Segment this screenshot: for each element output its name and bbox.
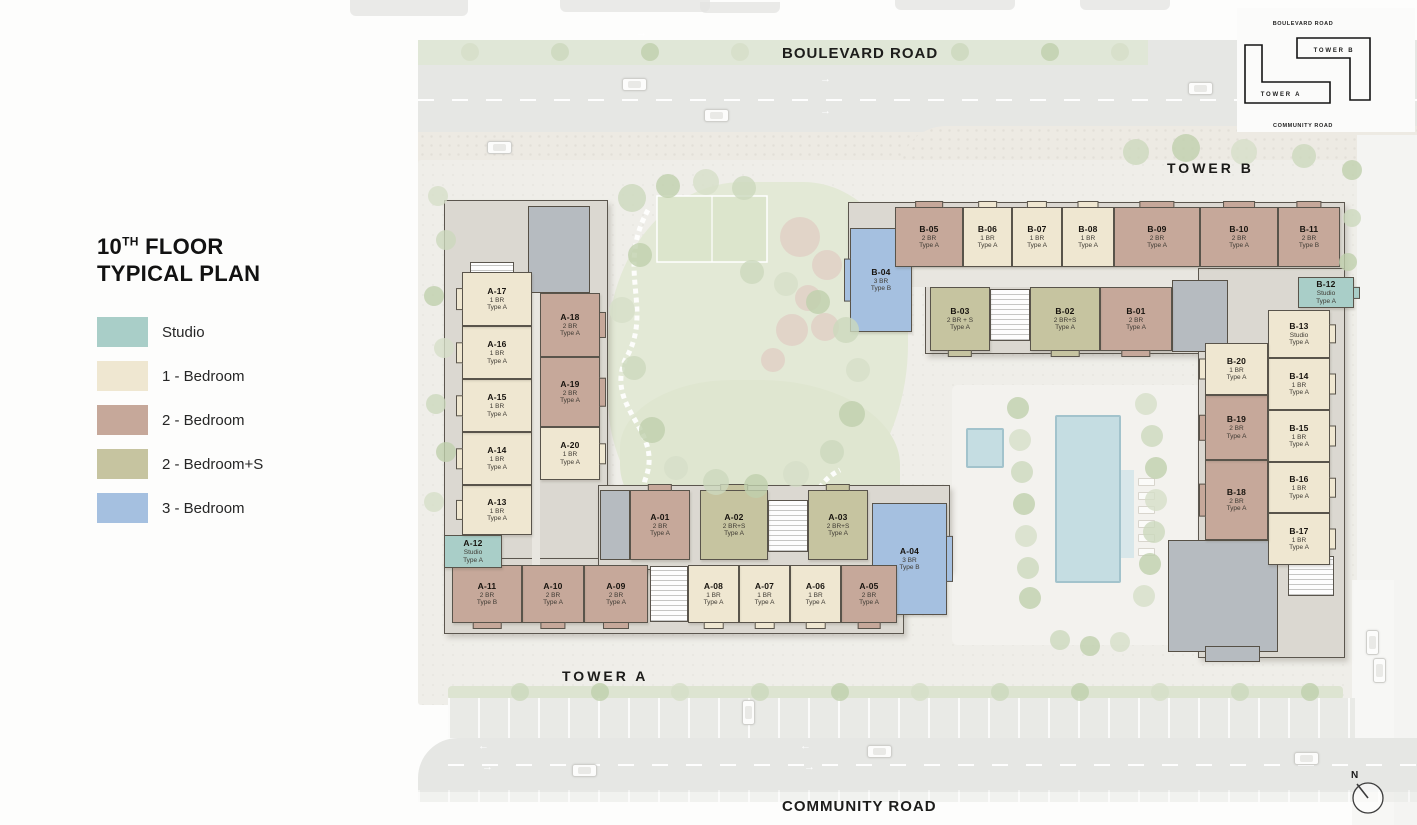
unit-type-line: Type A <box>606 599 626 607</box>
unit-A-20: A-201 BRType A <box>540 427 600 480</box>
legend-label: 2 - Bedroom <box>162 412 245 429</box>
unit-type-line: Type A <box>1147 242 1167 250</box>
legend-swatch-br2 <box>97 405 148 435</box>
unit-type-line: Type A <box>806 599 826 607</box>
tree <box>911 683 929 701</box>
tree <box>1172 134 1200 162</box>
tree <box>1041 43 1059 61</box>
car <box>1366 630 1379 655</box>
offsite-building <box>350 0 468 16</box>
unit-type-line: Type A <box>487 515 507 523</box>
tree <box>424 492 444 512</box>
unit-A-13: A-131 BRType A <box>462 485 532 535</box>
unit-B-01: B-012 BRType A <box>1100 287 1172 351</box>
unit-id: A-16 <box>487 339 506 350</box>
unit-type-line: Type A <box>1227 505 1247 513</box>
tree <box>1110 632 1130 652</box>
tree <box>656 174 680 198</box>
unit-type-line: Type B <box>1299 242 1319 250</box>
tree <box>1292 144 1316 168</box>
unit-type-line: Type A <box>487 411 507 419</box>
unit-A-11: A-112 BRType B <box>452 565 522 623</box>
tree <box>744 474 768 498</box>
tree <box>1111 43 1129 61</box>
corridor-tower-b <box>912 268 1198 287</box>
unit-type-line: Type A <box>1055 324 1075 332</box>
legend-swatch-br2s <box>97 449 148 479</box>
unit-B-18: B-182 BRType A <box>1205 460 1268 540</box>
unit-type-line: 2 BR <box>609 592 623 600</box>
tree <box>511 683 529 701</box>
tree <box>1123 139 1149 165</box>
unit-id: A-15 <box>487 392 506 403</box>
tree <box>1011 461 1033 483</box>
stair-tower-a-south <box>650 566 688 622</box>
traffic-arrow: ← <box>800 741 811 752</box>
unit-A-14: A-141 BRType A <box>462 432 532 485</box>
traffic-arrow: → <box>820 74 831 85</box>
keyplan: BOULEVARD ROAD TOWER B TOWER A COMMUNITY… <box>1237 8 1415 132</box>
unit-type-line: 2 BR <box>480 592 494 600</box>
tree <box>991 683 1009 701</box>
offsite-building <box>895 0 1015 10</box>
unit-A-02: A-022 BR+SType A <box>700 490 768 560</box>
tree <box>740 260 764 284</box>
tree <box>1145 489 1167 511</box>
unit-type-line: Studio <box>464 549 482 557</box>
tree <box>664 456 688 480</box>
pool-lounger <box>1138 478 1155 486</box>
unit-type-line: 1 BR <box>1229 367 1243 375</box>
unit-id: A-11 <box>478 581 497 592</box>
unit-id: B-04 <box>871 267 890 278</box>
car <box>704 109 729 122</box>
unit-A-06: A-061 BRType A <box>790 565 841 623</box>
tree <box>641 43 659 61</box>
unit-type-line: 1 BR <box>490 456 504 464</box>
unit-type-line: Type A <box>650 530 670 538</box>
unit-A-05: A-052 BRType A <box>841 565 897 623</box>
unit-id: B-14 <box>1289 371 1308 382</box>
unit-type-line: Type A <box>560 397 580 405</box>
traffic-arrow: → <box>636 28 647 39</box>
unit-type-line: 2 BR <box>1150 235 1164 243</box>
car <box>1294 752 1319 765</box>
car <box>1188 82 1213 95</box>
unit-type-line: 1 BR <box>1030 235 1044 243</box>
unit-A-19: A-192 BRType A <box>540 357 600 427</box>
unit-id: A-03 <box>828 512 847 523</box>
unit-A-08: A-081 BRType A <box>688 565 739 623</box>
unit-type-line: Type A <box>859 599 879 607</box>
tree <box>1339 253 1357 271</box>
unit-type-line: Type A <box>1227 433 1247 441</box>
offsite-building <box>700 2 780 13</box>
unit-B-11: B-112 BRType B <box>1278 207 1340 267</box>
unit-id: B-20 <box>1227 356 1246 367</box>
tree <box>1015 525 1037 547</box>
unit-type-line: 2 BR <box>653 523 667 531</box>
legend-swatch-studio <box>97 317 148 347</box>
unit-id: A-06 <box>806 581 825 592</box>
unit-id: A-07 <box>755 581 774 592</box>
floor-plan-page: BOULEVARD ROAD COMMUNITY ROAD <box>0 0 1417 825</box>
unit-type-line: 3 BR <box>874 278 888 286</box>
unit-type-line: 1 BR <box>1292 434 1306 442</box>
tree <box>628 243 652 267</box>
unit-type-line: 2 BR <box>563 323 577 331</box>
car <box>572 764 597 777</box>
unit-B-16: B-161 BRType A <box>1268 462 1330 513</box>
unit-type-line: 1 BR <box>490 297 504 305</box>
pool-steps <box>1121 470 1134 558</box>
tree <box>1050 630 1070 650</box>
unit-type-line: Type A <box>1289 441 1309 449</box>
page-title: 10TH FLOOR TYPICAL PLAN <box>97 234 260 288</box>
unit-type-line: Type A <box>755 599 775 607</box>
kids-pool <box>966 428 1004 468</box>
unit-type-line: Type A <box>543 599 563 607</box>
tree <box>1080 636 1100 656</box>
unit-id: B-12 <box>1316 279 1335 290</box>
unit-type-line: Type A <box>1126 324 1146 332</box>
unit-type-line: 2 BR <box>563 390 577 398</box>
unit-id: A-09 <box>606 581 625 592</box>
unit-type-line: 2 BR+S <box>1054 317 1077 325</box>
tree <box>839 401 865 427</box>
tree <box>1007 397 1029 419</box>
tree <box>1009 429 1031 451</box>
unit-type-line: Type A <box>1289 493 1309 501</box>
unit-B-15: B-151 BRType A <box>1268 410 1330 462</box>
unit-id: B-02 <box>1055 306 1074 317</box>
unit-A-07: A-071 BRType A <box>739 565 790 623</box>
unit-type-line: Type B <box>871 285 891 293</box>
tree <box>693 169 719 195</box>
tree <box>846 358 870 382</box>
tree <box>551 43 569 61</box>
unit-B-06: B-061 BRType A <box>963 207 1012 267</box>
tree <box>1141 425 1163 447</box>
core-tower-b-east <box>1172 280 1228 352</box>
unit-B-20: B-201 BRType A <box>1205 343 1268 395</box>
unit-id: B-16 <box>1289 474 1308 485</box>
tree <box>1151 683 1169 701</box>
unit-type-line: Type A <box>704 599 724 607</box>
tree <box>618 184 646 212</box>
tree <box>783 461 809 487</box>
boulevard-road-label: BOULEVARD ROAD <box>782 45 938 62</box>
unit-type-line: Type A <box>919 242 939 250</box>
car <box>742 700 755 725</box>
tree <box>1342 160 1362 180</box>
tree <box>428 186 448 206</box>
unit-type-line: Type A <box>1027 242 1047 250</box>
unit-type-line: 1 BR <box>1081 235 1095 243</box>
unit-id: B-01 <box>1126 306 1145 317</box>
unit-id: A-18 <box>560 312 579 323</box>
tree <box>436 442 456 462</box>
tree <box>703 469 729 495</box>
tree <box>461 43 479 61</box>
unit-type-line: 2 BR <box>1229 425 1243 433</box>
tree <box>951 43 969 61</box>
unit-id: A-02 <box>724 512 743 523</box>
tree <box>1133 585 1155 607</box>
unit-id: A-04 <box>900 546 919 557</box>
unit-type-line: 1 BR <box>490 403 504 411</box>
community-road-label: COMMUNITY ROAD <box>782 798 937 815</box>
unit-A-03: A-032 BR+SType A <box>808 490 868 560</box>
unit-B-08: B-081 BRType A <box>1062 207 1114 267</box>
unit-id: A-17 <box>487 286 506 297</box>
unit-id: A-08 <box>704 581 723 592</box>
page-title-line1: 10TH FLOOR <box>97 234 260 261</box>
unit-type-line: 1 BR <box>1292 537 1306 545</box>
unit-A-15: A-151 BRType A <box>462 379 532 432</box>
unit-type-line: Type B <box>899 564 919 572</box>
swimming-pool <box>1055 415 1121 583</box>
unit-type-line: Type A <box>1289 389 1309 397</box>
unit-A-09: A-092 BRType A <box>584 565 648 623</box>
unit-id: A-14 <box>487 445 506 456</box>
unit-id: A-12 <box>463 538 482 549</box>
tree <box>1019 587 1041 609</box>
stair-tower-a-mid <box>768 500 808 552</box>
car <box>867 745 892 758</box>
tree <box>424 286 444 306</box>
tree <box>591 683 609 701</box>
unit-id: B-15 <box>1289 423 1308 434</box>
legend: Studio1 - Bedroom2 - Bedroom2 - Bedroom+… <box>97 317 357 537</box>
car <box>487 141 512 154</box>
unit-type-line: 1 BR <box>980 235 994 243</box>
compass-icon: N <box>1338 760 1408 822</box>
unit-B-17: B-171 BRType A <box>1268 513 1330 565</box>
unit-id: B-03 <box>950 306 969 317</box>
unit-type-line: 1 BR <box>1292 382 1306 390</box>
unit-id: B-09 <box>1147 224 1166 235</box>
unit-type-line: 2 BR <box>1302 235 1316 243</box>
offsite-building <box>1080 0 1170 10</box>
tree <box>1301 683 1319 701</box>
unit-type-line: Studio <box>1290 332 1308 340</box>
tower-b-label: TOWER B <box>1167 160 1254 176</box>
unit-type-line: 2 BR <box>862 592 876 600</box>
tree <box>833 317 859 343</box>
unit-B-02: B-022 BR+SType A <box>1030 287 1100 351</box>
unit-A-12: A-12StudioType A <box>444 535 502 568</box>
traffic-arrow: ← <box>478 741 489 752</box>
unit-id: B-06 <box>978 224 997 235</box>
tower-a-label: TOWER A <box>562 668 648 684</box>
legend-item-br2: 2 - Bedroom <box>97 405 357 435</box>
core-tower-a-top <box>528 206 590 293</box>
unit-type-line: 2 BR <box>1129 317 1143 325</box>
tree <box>731 43 749 61</box>
unit-id: A-20 <box>560 440 579 451</box>
unit-id: B-13 <box>1289 321 1308 332</box>
unit-id: B-07 <box>1027 224 1046 235</box>
unit-type-line: Type A <box>1289 339 1309 347</box>
tree <box>1017 557 1039 579</box>
unit-type-line: Type A <box>1078 242 1098 250</box>
tree <box>820 440 844 464</box>
tree <box>436 230 456 250</box>
unit-id: B-18 <box>1227 487 1246 498</box>
unit-id: A-05 <box>859 581 878 592</box>
unit-A-17: A-171 BRType A <box>462 272 532 326</box>
unit-B-03: B-032 BR + SType A <box>930 287 990 351</box>
tree <box>1071 683 1089 701</box>
legend-label: 3 - Bedroom <box>162 500 245 517</box>
parking-row <box>448 698 1355 738</box>
tree <box>1343 209 1361 227</box>
unit-type-line: 2 BR + S <box>947 317 973 325</box>
keyplan-tower-b-label: TOWER B <box>1314 48 1355 54</box>
amenity-tower-b <box>1168 540 1278 652</box>
unit-type-line: Type A <box>560 330 580 338</box>
unit-B-13: B-13StudioType A <box>1268 310 1330 358</box>
unit-type-line: Type A <box>487 304 507 312</box>
unit-type-line: Type A <box>463 557 483 565</box>
unit-type-line: Type B <box>477 599 497 607</box>
page-title-line2: TYPICAL PLAN <box>97 261 260 288</box>
unit-type-line: Type A <box>950 324 970 332</box>
keyplan-tower-a-label: TOWER A <box>1261 92 1302 98</box>
car <box>1373 658 1386 683</box>
unit-type-line: 2 BR+S <box>723 523 746 531</box>
unit-type-line: Type A <box>978 242 998 250</box>
stair-tower-b-mid <box>990 289 1030 341</box>
unit-id: A-13 <box>487 497 506 508</box>
core-tower-a-mid <box>600 490 630 560</box>
unit-A-10: A-102 BRType A <box>522 565 584 623</box>
unit-type-line: 1 BR <box>706 592 720 600</box>
unit-type-line: Type A <box>487 358 507 366</box>
unit-id: B-11 <box>1300 224 1319 235</box>
unit-B-10: B-102 BRType A <box>1200 207 1278 267</box>
unit-type-line: 2 BR+S <box>827 523 850 531</box>
unit-type-line: Type A <box>560 459 580 467</box>
keyplan-bottom-label: COMMUNITY ROAD <box>1273 123 1333 129</box>
traffic-arrow: → <box>482 762 493 773</box>
tree <box>774 272 798 296</box>
tree <box>671 683 689 701</box>
unit-B-05: B-052 BRType A <box>895 207 963 267</box>
unit-B-12: B-12StudioType A <box>1298 277 1354 308</box>
tree <box>1135 393 1157 415</box>
unit-id: B-19 <box>1227 414 1246 425</box>
legend-item-studio: Studio <box>97 317 357 347</box>
unit-A-18: A-182 BRType A <box>540 293 600 357</box>
unit-type-line: 2 BR <box>922 235 936 243</box>
tree <box>1143 521 1165 543</box>
traffic-arrow: → <box>804 762 815 773</box>
unit-id: B-05 <box>919 224 938 235</box>
unit-type-line: Type A <box>1289 544 1309 552</box>
tree <box>831 683 849 701</box>
offsite-building <box>560 0 710 12</box>
unit-type-line: 1 BR <box>1292 485 1306 493</box>
legend-item-br1: 1 - Bedroom <box>97 361 357 391</box>
tree <box>1013 493 1035 515</box>
legend-swatch-br1 <box>97 361 148 391</box>
tree <box>426 394 446 414</box>
unit-type-line: Type A <box>487 464 507 472</box>
unit-B-19: B-192 BRType A <box>1205 395 1268 460</box>
unit-A-01: A-012 BRType A <box>630 490 690 560</box>
unit-B-09: B-092 BRType A <box>1114 207 1200 267</box>
amenity-tower-b-tab <box>1205 646 1260 662</box>
car <box>622 78 647 91</box>
unit-type-line: Type A <box>828 530 848 538</box>
tree <box>639 417 665 443</box>
unit-id: A-19 <box>560 379 579 390</box>
legend-label: 1 - Bedroom <box>162 368 245 385</box>
tree <box>1145 457 1167 479</box>
unit-B-14: B-141 BRType A <box>1268 358 1330 410</box>
unit-type-line: Type A <box>724 530 744 538</box>
unit-type-line: 2 BR <box>546 592 560 600</box>
unit-type-line: Type A <box>1316 298 1336 306</box>
unit-type-line: 1 BR <box>490 508 504 516</box>
keyplan-top-label: BOULEVARD ROAD <box>1273 21 1334 27</box>
legend-item-br2s: 2 - Bedroom+S <box>97 449 357 479</box>
unit-id: B-17 <box>1289 526 1308 537</box>
unit-type-line: Type A <box>1227 374 1247 382</box>
unit-type-line: 3 BR <box>902 557 916 565</box>
legend-item-br3: 3 - Bedroom <box>97 493 357 523</box>
unit-type-line: 1 BR <box>563 451 577 459</box>
compass-north-label: N <box>1351 770 1358 781</box>
unit-id: A-01 <box>650 512 669 523</box>
tree <box>622 356 646 380</box>
tree <box>732 176 756 200</box>
unit-id: A-10 <box>543 581 562 592</box>
tree <box>751 683 769 701</box>
tree <box>1139 553 1161 575</box>
unit-type-line: Studio <box>1317 290 1335 298</box>
unit-type-line: Type A <box>1229 242 1249 250</box>
unit-id: B-08 <box>1078 224 1097 235</box>
unit-A-16: A-161 BRType A <box>462 326 532 379</box>
tree <box>609 297 635 323</box>
legend-label: 2 - Bedroom+S <box>162 456 263 473</box>
tree <box>806 290 830 314</box>
unit-type-line: 2 BR <box>1229 498 1243 506</box>
tree <box>1231 683 1249 701</box>
tree <box>434 338 454 358</box>
legend-label: Studio <box>162 324 205 341</box>
unit-id: B-10 <box>1229 224 1248 235</box>
corridor-tower-a <box>532 268 540 565</box>
unit-B-07: B-071 BRType A <box>1012 207 1062 267</box>
unit-type-line: 1 BR <box>757 592 771 600</box>
unit-type-line: 1 BR <box>808 592 822 600</box>
unit-type-line: 2 BR <box>1232 235 1246 243</box>
traffic-arrow: → <box>820 106 831 117</box>
unit-type-line: 1 BR <box>490 350 504 358</box>
legend-swatch-br3 <box>97 493 148 523</box>
